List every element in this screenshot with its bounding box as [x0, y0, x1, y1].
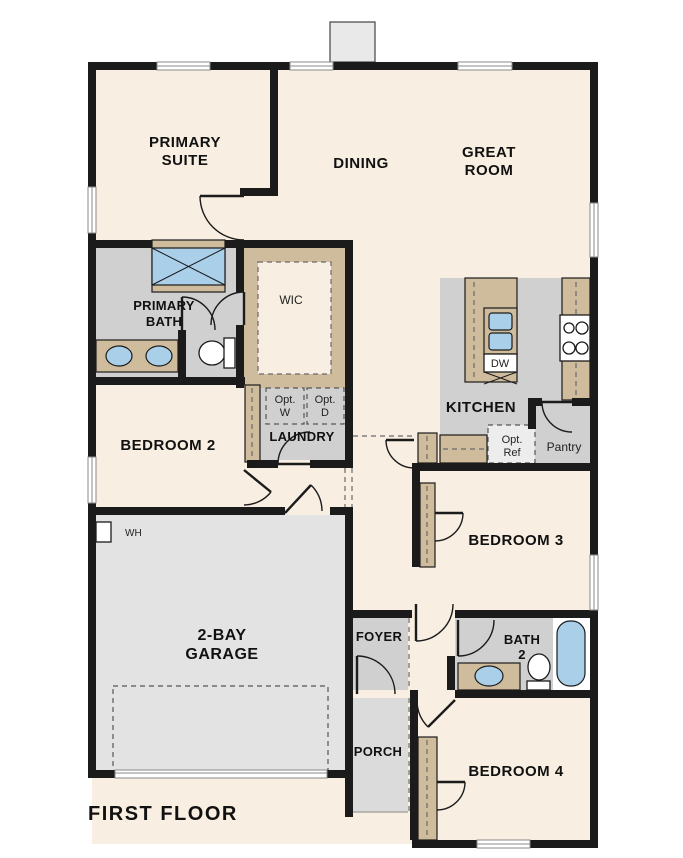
label-opt-fridge: Opt.Ref [502, 434, 523, 459]
toilet-bowl [199, 341, 225, 365]
sink-right [146, 346, 172, 366]
bath2-toilet-bowl [528, 654, 550, 680]
label-bedroom3: BEDROOM 3 [468, 532, 563, 549]
kitchen-sink-basin2 [489, 333, 512, 350]
wic-floor [258, 262, 331, 374]
label-opt-dryer-line2: D [321, 407, 329, 419]
sink-left [106, 346, 132, 366]
wall-bedroom3-left [412, 471, 420, 567]
floor-plan-page: PRIMARYSUITE DINING GREATROOM PRIMARYBAT… [0, 0, 683, 858]
wall-suite-jog [240, 188, 278, 196]
wall-suite-right [270, 62, 278, 196]
garage-door-opening [115, 770, 327, 778]
wall-bath-post [225, 240, 236, 248]
label-opt-washer-line1: Opt. [275, 394, 296, 406]
wall-pantry-west [528, 406, 536, 429]
wall-garage-east [345, 515, 353, 778]
wall-vanity-stub [178, 330, 186, 377]
label-porch: PORCH [354, 744, 402, 759]
bath2-sink [475, 666, 503, 686]
label-opt-fridge-line2: Ref [503, 447, 521, 459]
label-water-heater: WH [125, 528, 142, 539]
toilet-tank [224, 338, 235, 368]
wall-laundry-bottom-a [247, 460, 278, 468]
bathtub [557, 621, 585, 686]
wall-bath2-west [447, 656, 455, 690]
label-great-room-line2: ROOM [465, 162, 514, 179]
burner-4 [576, 342, 588, 354]
kitchen-sink-basin1 [489, 313, 512, 330]
wic-closet [244, 248, 345, 388]
wall-spine [345, 240, 353, 467]
label-great-room: GREATROOM [462, 144, 516, 179]
wall-bath-top [88, 240, 152, 248]
bath2-toilet-tank [527, 681, 550, 690]
label-dishwasher: DW [491, 358, 510, 370]
label-opt-dryer-line1: Opt. [315, 394, 336, 406]
wall-foyer-top [345, 610, 412, 618]
wall-garage-top-a [88, 507, 285, 515]
burner-2 [576, 322, 588, 334]
wall-bedroom4-left [410, 690, 418, 840]
wall-wic-west-a [236, 248, 244, 292]
label-laundry: LAUNDRY [269, 429, 334, 444]
label-opt-washer-line2: W [280, 407, 291, 419]
label-great-room-line1: GREAT [462, 144, 516, 161]
wall-pantry-top-b [572, 398, 598, 406]
wall-bedroom3-top [412, 463, 598, 471]
plan-title: FIRST FLOOR [88, 803, 238, 825]
label-wic: WIC [279, 293, 303, 307]
label-primary-bath-line1: PRIMARY [133, 298, 195, 313]
stove [560, 315, 590, 361]
label-foyer: FOYER [356, 629, 403, 644]
label-garage-line1: 2-BAY [197, 627, 246, 644]
label-pantry: Pantry [547, 440, 582, 454]
label-kitchen: KITCHEN [446, 399, 516, 416]
bedroom2-closet [245, 385, 260, 462]
floor-plan-svg: PRIMARYSUITE DINING GREATROOM PRIMARYBAT… [0, 0, 683, 858]
label-garage-line2: GARAGE [185, 646, 258, 663]
wall-bath2-top [455, 610, 598, 618]
label-primary-suite-line1: PRIMARY [149, 134, 221, 151]
wall-bedroom2-top [88, 377, 245, 385]
wall-porch-stub [345, 778, 353, 817]
burner-1 [564, 323, 574, 333]
label-bedroom4: BEDROOM 4 [468, 763, 564, 780]
wall-right [590, 62, 598, 848]
wall-garage-top-b [330, 507, 353, 515]
wall-bath2-bottom [455, 690, 598, 698]
wall-wic-top [236, 240, 353, 248]
label-bath2-line2: 2 [518, 647, 526, 662]
burner-3 [563, 342, 575, 354]
wall-laundry-bottom-b [310, 460, 353, 468]
label-dining: DINING [333, 155, 389, 172]
label-bath2-line1: BATH [504, 632, 540, 647]
label-opt-fridge-line1: Opt. [502, 434, 523, 446]
label-bedroom2: BEDROOM 2 [120, 437, 215, 454]
water-heater-box [96, 522, 111, 542]
label-primary-suite-line2: SUITE [162, 152, 209, 169]
fireplace-bump [330, 22, 375, 62]
wall-pantry-top-a [528, 398, 542, 406]
label-primary-bath-line2: BATH [146, 314, 182, 329]
wall-left [88, 62, 96, 778]
